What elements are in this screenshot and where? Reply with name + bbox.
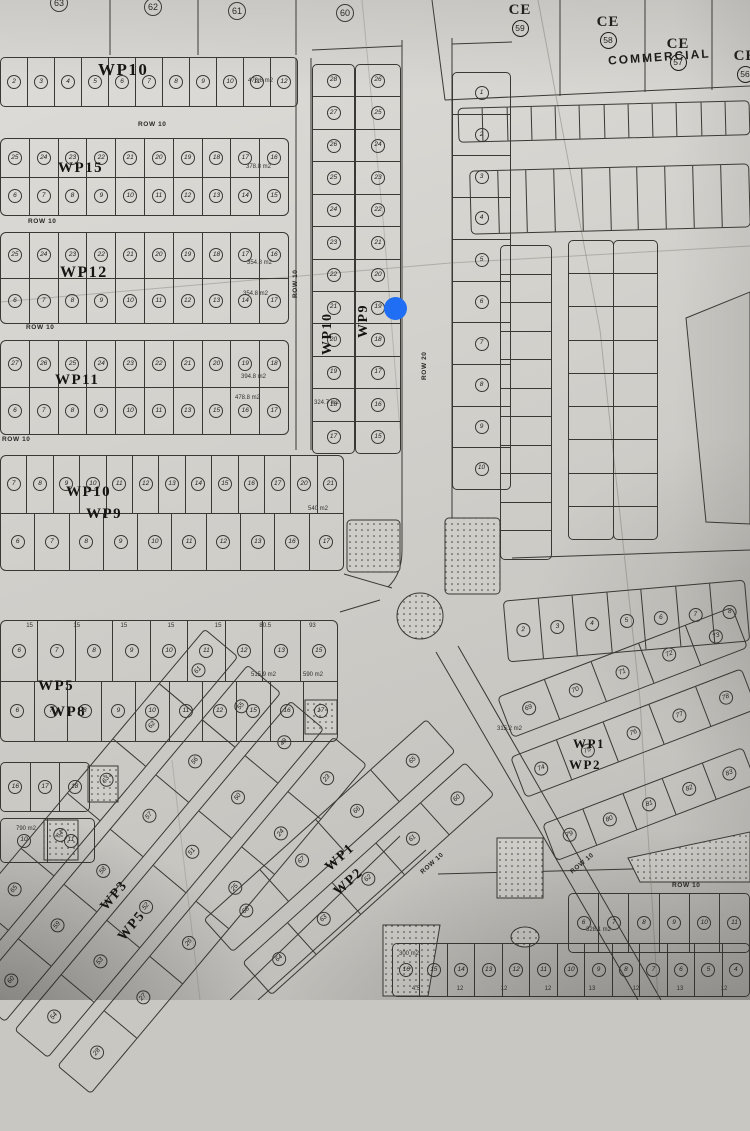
road-label-row10-vertical: ROW 10 <box>292 269 299 298</box>
lot-number: 19 <box>181 151 195 165</box>
lot-number: 26 <box>179 933 199 953</box>
lot-cell <box>627 104 652 138</box>
area-note: 394.8 m2 <box>241 374 266 380</box>
ce-number: 58 <box>600 32 617 49</box>
lot-cell: 24 <box>313 194 354 226</box>
lot-cell <box>692 165 722 228</box>
lot-number: 24 <box>94 357 108 371</box>
lot-cell <box>724 101 749 135</box>
lot-cell <box>569 439 613 472</box>
lot-cell: 26 <box>29 341 58 387</box>
lot-cell <box>501 331 551 360</box>
lot-number: 8 <box>619 963 633 977</box>
lot-number: 8 <box>475 378 489 392</box>
lot-cell <box>501 274 551 303</box>
lot-number: 65 <box>403 751 423 771</box>
lot-cell <box>569 506 613 539</box>
area-note: 478.8 m2 <box>248 78 273 84</box>
lot-cell <box>459 108 483 142</box>
lot-number: 59 <box>48 916 68 936</box>
lot-number: 22 <box>371 203 385 217</box>
lot-cell: 11 <box>144 279 173 324</box>
lot-cell <box>482 108 507 142</box>
lot-cell: 16 <box>274 514 308 571</box>
lot-number: 5 <box>701 963 715 977</box>
lot-number: 7 <box>37 294 51 308</box>
lot-number: 17 <box>238 151 252 165</box>
strip-wp9-vertical: 262524232221201918171615 <box>355 64 401 454</box>
lot-number: 78 <box>717 689 735 707</box>
lot-cell: 14 <box>230 279 259 324</box>
block-label-wp10-top: WP10 <box>98 60 148 80</box>
block-label-wp9-mid: WP9 <box>86 506 122 523</box>
lot-number: 20 <box>371 268 385 282</box>
lot-cell: 7 <box>37 621 74 681</box>
lot-number: 26 <box>371 74 385 88</box>
lot-cell: 21 <box>173 341 202 387</box>
block-wp11: 27262524232221201918 6789101113151617 <box>0 340 289 435</box>
width-mark: 15 <box>6 623 53 629</box>
map-photo: { "map": { "paper_color": "#d3d1cc", "li… <box>0 0 750 1000</box>
lot-number: 12 <box>139 477 153 491</box>
lot-cell: 8 <box>58 178 87 216</box>
lot-cell <box>501 302 551 331</box>
lot-number: 16 <box>399 963 413 977</box>
lot-cell: 8 <box>58 279 87 324</box>
lot-cell: 25 <box>1 139 29 177</box>
commercial-strip <box>469 163 750 234</box>
lot-cell: 17 <box>356 356 400 388</box>
lot-cell <box>700 102 725 136</box>
lot-number: 13 <box>209 189 223 203</box>
ce-code: CE <box>497 2 543 19</box>
lot-number: 25 <box>327 171 341 185</box>
block-label-wp5: WP5 <box>38 678 74 695</box>
stipple-parcel <box>628 832 750 882</box>
lot-cell: 23 <box>115 341 144 387</box>
width-mark: 12 <box>526 986 570 992</box>
lot-number: 68 <box>236 901 256 921</box>
lot-number: 23 <box>65 248 79 262</box>
lot-cell: 17 <box>230 139 259 177</box>
lot-number: 10 <box>123 404 137 418</box>
lot-number: 22 <box>327 268 341 282</box>
lot-cell: 24 <box>29 139 58 177</box>
width-mark: 12 <box>614 986 658 992</box>
lot-number: 23 <box>123 357 137 371</box>
area-note: 324.7 m2 <box>314 400 339 406</box>
lot-cell <box>581 168 611 231</box>
lot-cell: 18 <box>202 233 231 278</box>
lot-row: 6789101112131417 <box>1 278 288 324</box>
lot-number: 5 <box>619 613 634 628</box>
lot-cell: 19 <box>173 139 202 177</box>
lot-number: 8 <box>65 404 79 418</box>
lot-number: 16 <box>238 404 252 418</box>
lot-cell: 13 <box>240 514 274 571</box>
lot-number: 20 <box>152 151 166 165</box>
lot-cell: 7 <box>1 456 26 513</box>
lot-cell: 7 <box>29 388 58 434</box>
lot-cell: 6 <box>1 621 37 681</box>
width-mark: 13 <box>658 986 702 992</box>
lot-cell: 23 <box>313 226 354 258</box>
lot-number: 65 <box>5 880 25 900</box>
lot-cell <box>614 306 657 339</box>
lot-number: 22 <box>94 248 108 262</box>
lot-number: 7 <box>50 644 64 658</box>
lot-number: 16 <box>8 780 22 794</box>
lot-number: 63 <box>314 909 334 929</box>
lot-cell <box>720 164 750 227</box>
lot-cell: 21 <box>115 233 144 278</box>
lot-cell <box>614 506 657 539</box>
area-note: 315.2 m2 <box>497 726 522 732</box>
lot-number: 9 <box>592 963 606 977</box>
lot-number: 77 <box>671 706 689 724</box>
lot-number: 21 <box>323 477 337 491</box>
lot-number: 11 <box>152 404 166 418</box>
lot-cell <box>501 530 551 559</box>
lot-cell: 15 <box>202 388 231 434</box>
lot-number: 15 <box>427 963 441 977</box>
lot-cell: 15 <box>211 456 237 513</box>
lot-cell: 16 <box>259 233 288 278</box>
lot-cell: 13 <box>202 279 231 324</box>
lot-cell: 7 <box>29 178 58 216</box>
lot-number: 9 <box>196 75 210 89</box>
lot-number: 4 <box>584 616 599 631</box>
lot-number: 7 <box>475 337 489 351</box>
lot-cell <box>497 170 527 233</box>
lot-row: 78910111213141516172021 <box>1 456 343 513</box>
lot-number: 8 <box>87 644 101 658</box>
lot-number: 14 <box>238 189 252 203</box>
lot-number: 61 <box>403 829 423 849</box>
block-label-wp15: WP15 <box>58 160 103 177</box>
lot-cell <box>637 167 667 230</box>
lot-number: 27 <box>327 106 341 120</box>
lot-number: 17 <box>38 780 52 794</box>
lot-cell: 8 <box>26 456 52 513</box>
lot-cell: 3 <box>537 596 577 659</box>
ce-number: 56 <box>737 66 750 83</box>
lot-row: 6789101112131617 <box>1 513 343 571</box>
width-mark: 93 <box>289 623 336 629</box>
lot-number: 6 <box>8 189 22 203</box>
lot-number: 76 <box>625 724 643 742</box>
lot-cell: 25 <box>1 233 29 278</box>
width-mark: 13 <box>570 986 614 992</box>
lot-number: 17 <box>371 366 385 380</box>
lot-cell: 10 <box>115 388 144 434</box>
lot-cell <box>569 406 613 439</box>
lot-cell: 13 <box>173 388 202 434</box>
lot-cell: 15 <box>259 178 288 216</box>
lot-number: 19 <box>181 248 195 262</box>
lot-number: 71 <box>613 663 631 681</box>
area-note: 478.8 m2 <box>235 395 260 401</box>
lot-number: 69 <box>520 699 538 717</box>
lot-number: 16 <box>267 151 281 165</box>
lot-number: 9 <box>94 294 108 308</box>
lot-number: 57 <box>139 806 159 826</box>
lot-cell: 13 <box>158 456 184 513</box>
lot-cell: 25 <box>313 161 354 193</box>
lot-cell: 9 <box>86 388 115 434</box>
lot-cell: 22 <box>356 194 400 226</box>
lot-number: 9 <box>114 535 128 549</box>
lot-cell: 9 <box>112 621 149 681</box>
lot-cell: 22 <box>313 259 354 291</box>
lot-number: 26 <box>37 357 51 371</box>
lot-number: 25 <box>371 106 385 120</box>
lot-cell: 27 <box>313 96 354 128</box>
lot-number: 27 <box>8 357 22 371</box>
blue-location-marker[interactable] <box>384 297 407 320</box>
road-label-row10: ROW 10 <box>28 218 57 225</box>
lot-number: 70 <box>567 681 585 699</box>
lot-number: 25 <box>8 151 22 165</box>
large-lot-number: 61 <box>228 2 246 20</box>
lot-cell: 11 <box>171 514 205 571</box>
lot-number: 14 <box>454 963 468 977</box>
ce-code: CE <box>722 48 750 65</box>
lot-cell: 14 <box>185 456 211 513</box>
lot-cell <box>555 106 580 140</box>
lot-number: 10 <box>123 294 137 308</box>
lot-cell: 11 <box>144 178 173 216</box>
width-mark: 15 <box>195 623 242 629</box>
lot-number: 12 <box>181 294 195 308</box>
lot-number: 22 <box>152 357 166 371</box>
lot-number: 8 <box>169 75 183 89</box>
lot-number: 3 <box>550 619 565 634</box>
lot-cell: 7 <box>34 514 68 571</box>
lot-number: 4 <box>729 963 743 977</box>
lot-cell: 24 <box>356 129 400 161</box>
road-label-row10: ROW 10 <box>26 324 55 331</box>
lot-cell: 12 <box>270 58 297 106</box>
lot-cell <box>614 439 657 472</box>
lot-cell: 17 <box>309 514 343 571</box>
lot-number: 49 <box>274 733 294 753</box>
lot-number: 18 <box>209 151 223 165</box>
lot-number: 11 <box>152 294 166 308</box>
lot-cell: 10 <box>115 178 144 216</box>
lot-cell: 20 <box>290 456 316 513</box>
lot-cell: 4 <box>54 58 81 106</box>
lot-cell: 3 <box>27 58 54 106</box>
lot-number: 15 <box>218 477 232 491</box>
ladder-block <box>500 245 552 560</box>
row10-road-edges <box>296 58 311 450</box>
lot-number: 11 <box>112 477 126 491</box>
lot-cell <box>506 107 531 141</box>
lot-number: 5 <box>475 253 489 267</box>
width-mark: 15 <box>53 623 100 629</box>
lot-number: 10 <box>162 644 176 658</box>
lot-cell: 26 <box>356 65 400 96</box>
lot-cell <box>652 103 677 137</box>
lot-number: 9 <box>125 644 139 658</box>
area-note: 590 m2 <box>303 672 323 678</box>
lot-cell: 26 <box>313 129 354 161</box>
lot-number: 18 <box>267 357 281 371</box>
area-note: 300 m2 <box>399 951 419 957</box>
lot-number: 28 <box>87 1042 107 1062</box>
lot-number: 24 <box>37 151 51 165</box>
lot-cell: 17 <box>259 279 288 324</box>
lot-number: 6 <box>10 704 24 718</box>
lot-cell <box>569 306 613 339</box>
width-marks: 4.512121213121312 <box>394 986 746 992</box>
ce-block-58: CE 58 <box>585 14 631 49</box>
lot-cell: 4 <box>572 593 612 656</box>
lot-number: 56 <box>185 751 205 771</box>
lot-cell <box>501 445 551 474</box>
lot-number: 74 <box>532 759 550 777</box>
lot-number: 15 <box>371 430 385 444</box>
lot-number: 8 <box>79 535 93 549</box>
lot-cell <box>579 105 604 139</box>
road-label-row10: ROW 10 <box>2 436 31 443</box>
lot-number: 6 <box>11 535 25 549</box>
lot-number: 24 <box>371 139 385 153</box>
area-note: 540 m2 <box>308 506 328 512</box>
ladder-block <box>568 240 614 540</box>
lot-cell: 6 <box>1 514 34 571</box>
lot-number: 13 <box>251 535 265 549</box>
lot-number: 6 <box>12 644 26 658</box>
lot-number: 79 <box>561 826 579 844</box>
lot-cell: 16 <box>356 388 400 420</box>
lot-number: 83 <box>720 764 738 782</box>
area-note: 354.8 m2 <box>247 260 272 266</box>
lot-number: 23 <box>327 236 341 250</box>
lot-cell: 7 <box>29 279 58 324</box>
block-wp10-wp9: 78910111213141516172021 6789101112131617 <box>0 455 344 571</box>
lot-number: 21 <box>181 357 195 371</box>
lot-cell <box>525 169 555 232</box>
lot-cell: 12 <box>132 456 158 513</box>
lot-number: 16 <box>244 477 258 491</box>
lot-number: 24 <box>271 823 291 843</box>
open-parcel <box>686 292 750 524</box>
lot-number: 73 <box>707 627 725 645</box>
lot-cell: 9 <box>86 279 115 324</box>
lot-number: 13 <box>274 644 288 658</box>
lot-number: 10 <box>475 462 489 476</box>
lot-cell: 12 <box>173 178 202 216</box>
lot-number: 16 <box>371 398 385 412</box>
lot-cell: 10 <box>137 514 171 571</box>
area-note: 378.8 m2 <box>246 164 271 170</box>
lot-cell: 11 <box>144 388 173 434</box>
block-label-wp10-vertical: WP10 <box>320 312 336 355</box>
lot-cell: 6 <box>1 279 29 324</box>
lot-cell: 9 <box>189 58 216 106</box>
lot-number: 10 <box>564 963 578 977</box>
width-mark: 4.5 <box>394 986 438 992</box>
lot-number: 27 <box>133 988 153 1008</box>
lot-number: 72 <box>660 645 678 663</box>
lot-row: 6789101112131415 <box>1 177 288 216</box>
lot-number: 12 <box>237 644 251 658</box>
lot-cell: 2 <box>504 599 543 662</box>
lot-cell <box>569 340 613 373</box>
lot-number: 15 <box>312 644 326 658</box>
lot-row: 27262524232221201918 <box>1 341 288 387</box>
lot-number: 64 <box>270 949 290 969</box>
lot-number: 11 <box>182 535 196 549</box>
lot-number: 82 <box>680 780 698 798</box>
block-label-wp9-vertical: WP9 <box>356 304 372 338</box>
lot-number: 13 <box>165 477 179 491</box>
lot-cell: 2 <box>1 58 27 106</box>
lot-number: 66 <box>347 801 367 821</box>
lot-number: 62 <box>143 715 163 735</box>
area-note: 515.9 m2 <box>251 672 276 678</box>
lot-cell: 18 <box>259 341 288 387</box>
lot-cell <box>569 273 613 306</box>
left-road-hints <box>340 574 392 612</box>
lot-cell: 24 <box>29 233 58 278</box>
lot-cell: 20 <box>356 259 400 291</box>
lot-number: 9 <box>475 420 489 434</box>
lot-cell: 28 <box>313 65 354 96</box>
lot-cell: 20 <box>144 139 173 177</box>
lot-cell <box>569 373 613 406</box>
width-mark: 12 <box>482 986 526 992</box>
lot-number: 4 <box>61 75 75 89</box>
lot-number: 17 <box>319 535 333 549</box>
width-marks: 151515151580.593 <box>6 623 336 629</box>
lot-number: 15 <box>267 189 281 203</box>
lot-number: 15 <box>209 404 223 418</box>
lot-cell <box>501 416 551 445</box>
lot-cell <box>530 106 555 140</box>
lot-number: 17 <box>327 430 341 444</box>
area-note: 354.8 m2 <box>243 291 268 297</box>
lot-number: 12 <box>181 189 195 203</box>
strip-wp10-vertical: 282726252423222120191817 <box>312 64 355 454</box>
lot-cell <box>569 473 613 506</box>
block-label-wp1-right: WP1 <box>573 736 605 752</box>
lot-cell <box>553 169 583 232</box>
lot-cell: 17 <box>230 233 259 278</box>
road-label-row10: ROW 10 <box>672 882 701 889</box>
lot-number: 20 <box>209 357 223 371</box>
lot-cell <box>614 373 657 406</box>
lot-number: 6 <box>475 295 489 309</box>
lot-number: 19 <box>327 366 341 380</box>
lot-number: 1 <box>475 86 489 100</box>
lot-number: 8 <box>637 916 651 930</box>
lot-cell: 15 <box>356 421 400 453</box>
lot-cell: 21 <box>356 226 400 258</box>
lot-cell: 20 <box>202 341 231 387</box>
lot-number: 9 <box>94 404 108 418</box>
lot-cell: 16 <box>238 456 264 513</box>
lot-cell <box>501 359 551 388</box>
lot-number: 23 <box>317 769 337 789</box>
ce-block-56: CE 56 <box>722 48 750 83</box>
lot-number: 21 <box>123 151 137 165</box>
lot-number: 7 <box>7 477 21 491</box>
lot-number: 13 <box>181 404 195 418</box>
lot-cell: 10 <box>115 279 144 324</box>
